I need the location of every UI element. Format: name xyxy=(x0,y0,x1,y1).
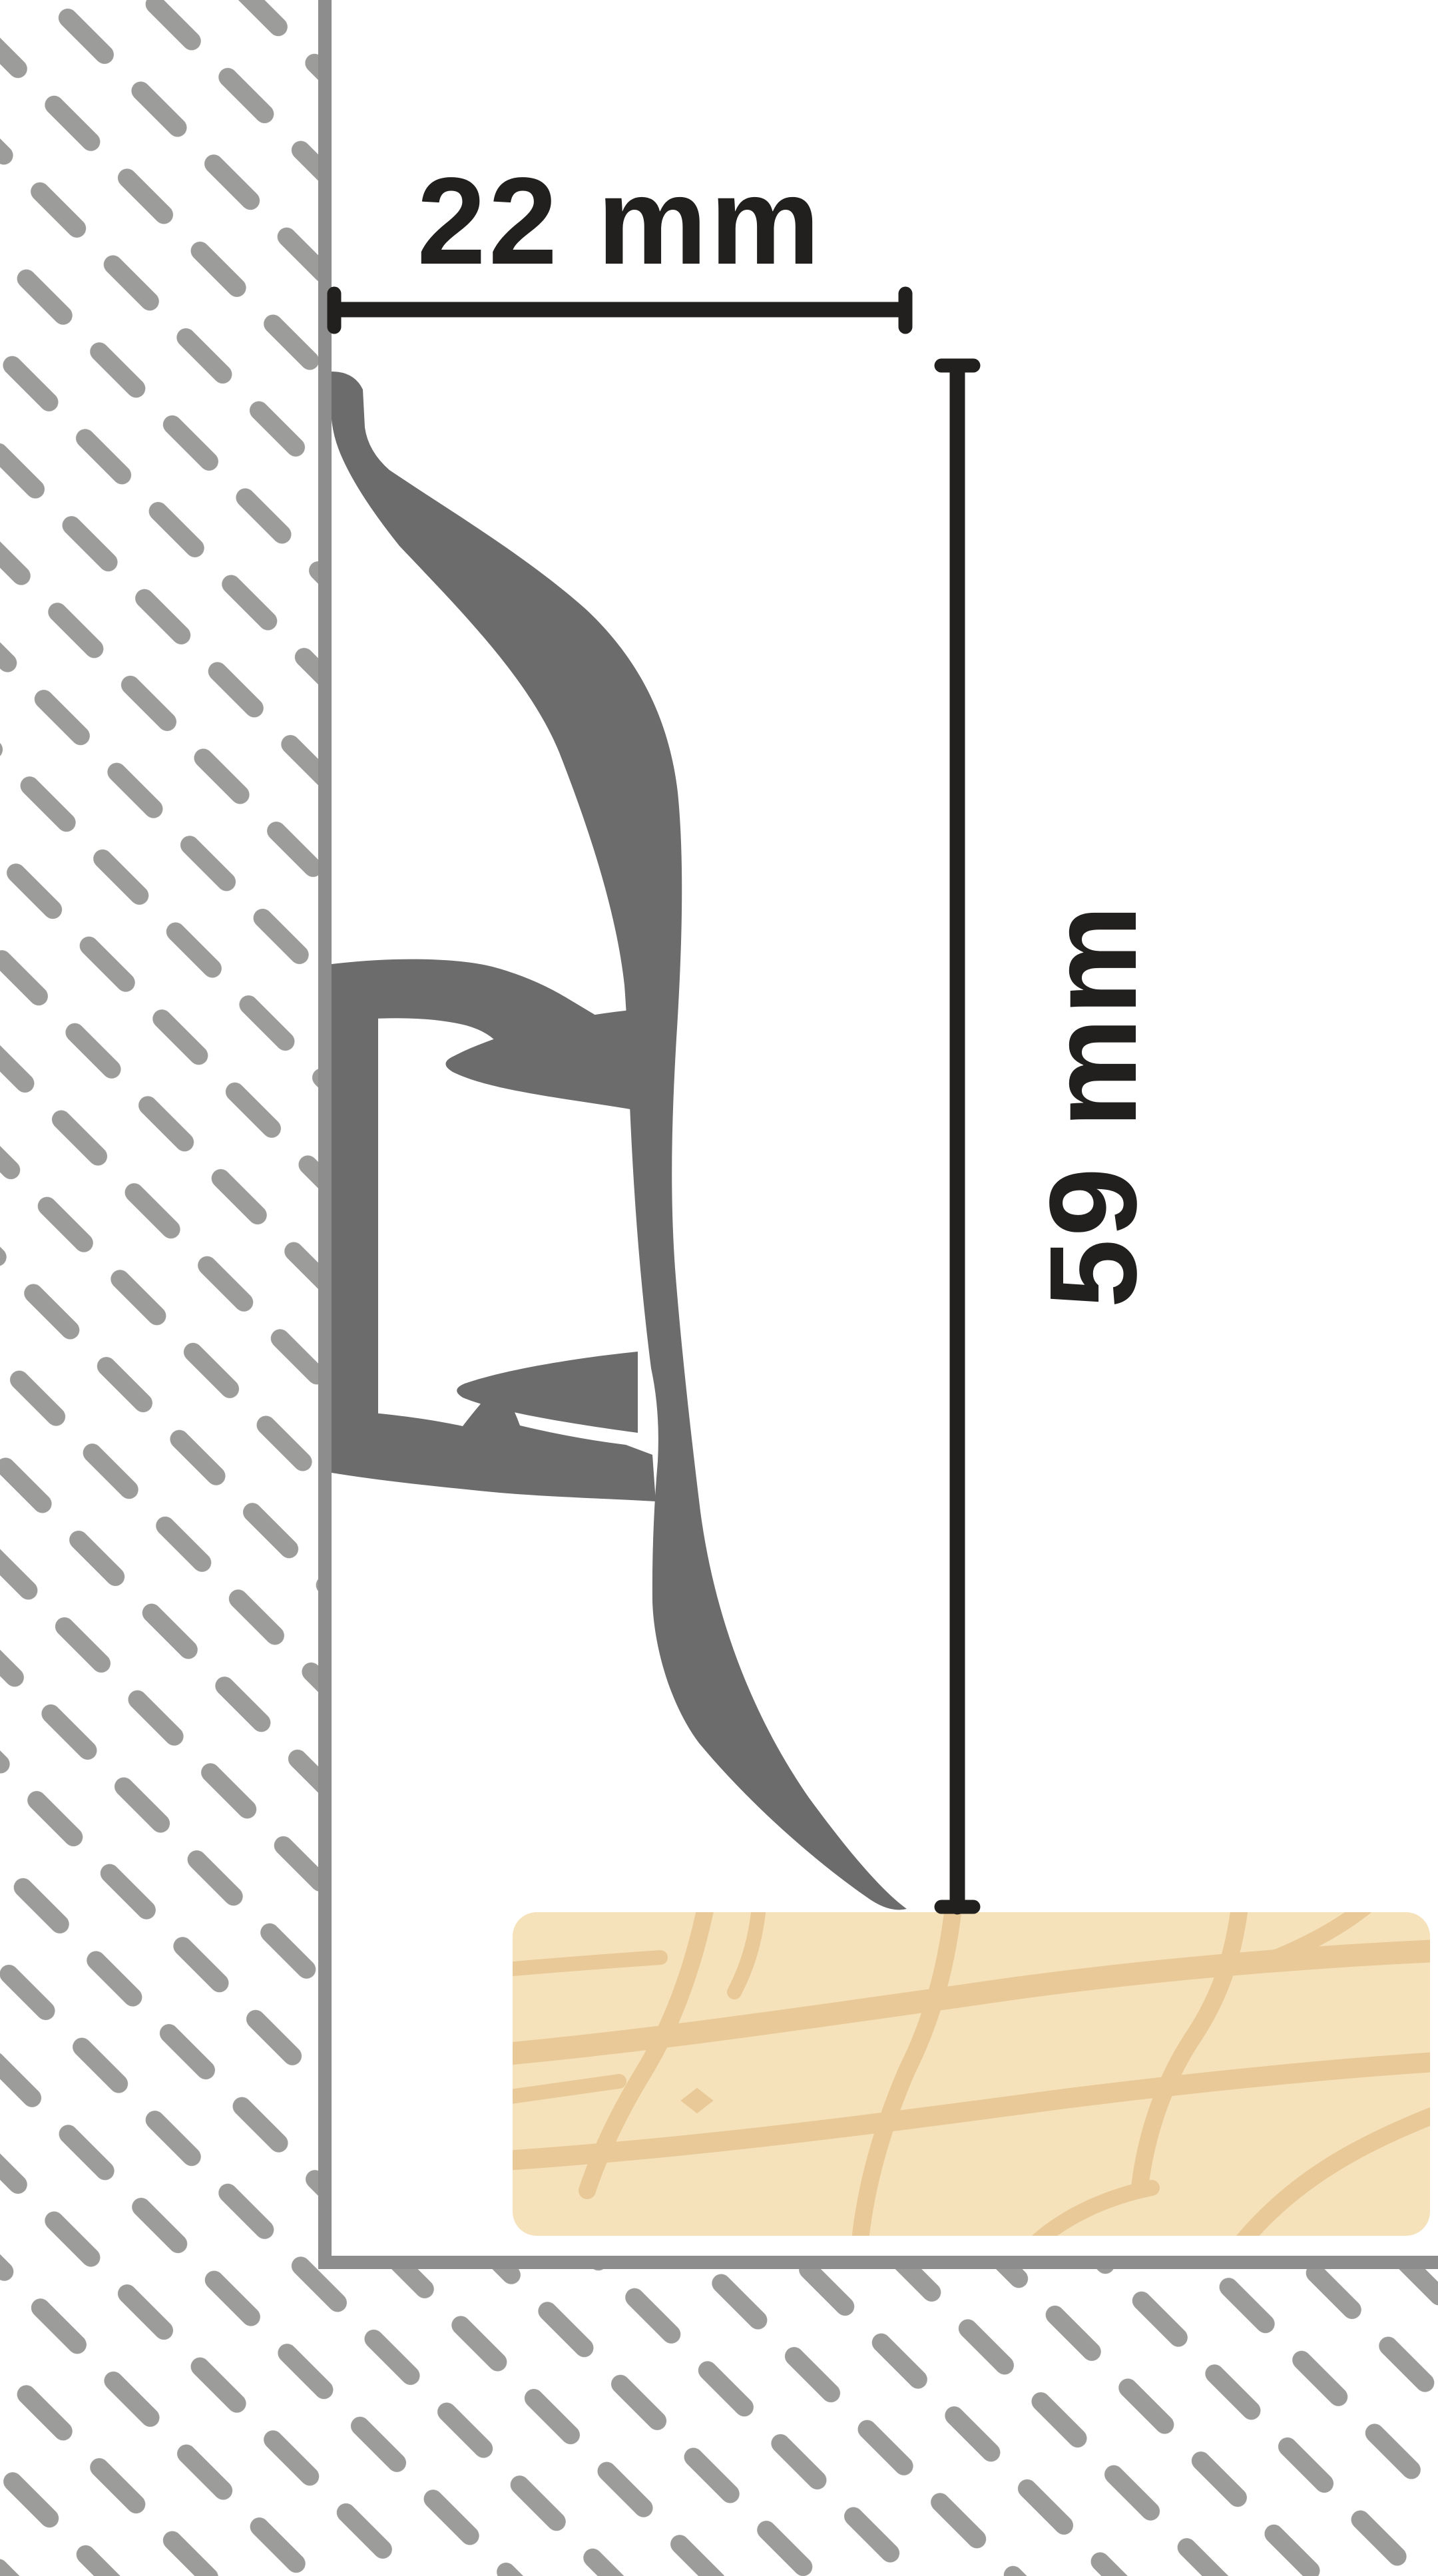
subfloor-line xyxy=(318,2256,1438,2269)
height-dimension-label: 59 mm xyxy=(1032,902,1156,1308)
floor-panel xyxy=(506,1908,1437,2240)
diagram-canvas: 22 mm 59 mm xyxy=(0,0,1438,2576)
skirting-profile xyxy=(332,372,907,1910)
wall-hatch-region xyxy=(0,0,318,2576)
subfloor-hatch-region xyxy=(318,2269,1438,2576)
clip-channel-wall-bar xyxy=(332,964,378,1473)
wall-line xyxy=(318,0,332,2269)
profile-face xyxy=(332,372,907,1910)
width-dimension-label: 22 mm xyxy=(333,160,907,284)
